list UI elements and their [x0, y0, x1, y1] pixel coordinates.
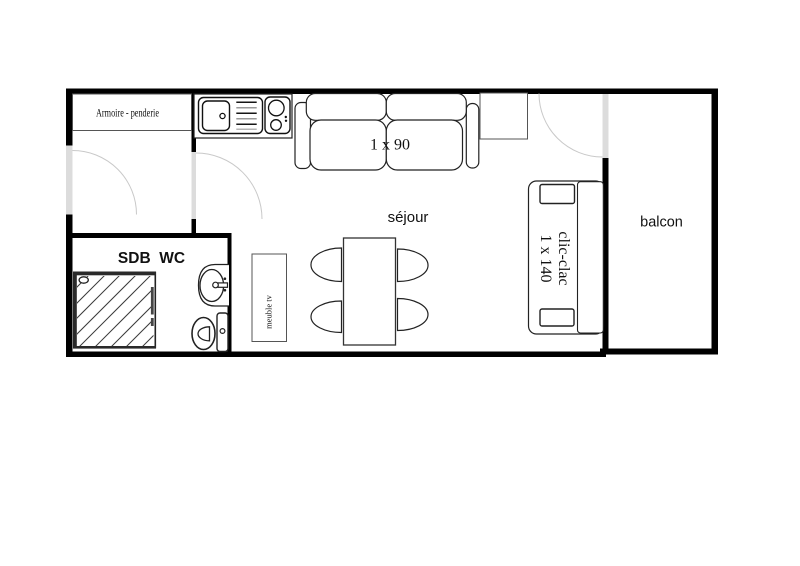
svg-text:balcon: balcon	[640, 215, 683, 231]
svg-text:1 x 90: 1 x 90	[370, 137, 410, 154]
svg-text:clic-clac: clic-clac	[555, 231, 572, 285]
svg-text:SDB WC: SDB WC	[118, 250, 185, 267]
svg-text:Armoire - penderie: Armoire - penderie	[96, 107, 159, 119]
svg-text:séjour: séjour	[388, 209, 429, 226]
svg-text:meuble tv: meuble tv	[264, 294, 274, 329]
svg-text:1 x 140: 1 x 140	[537, 235, 554, 283]
